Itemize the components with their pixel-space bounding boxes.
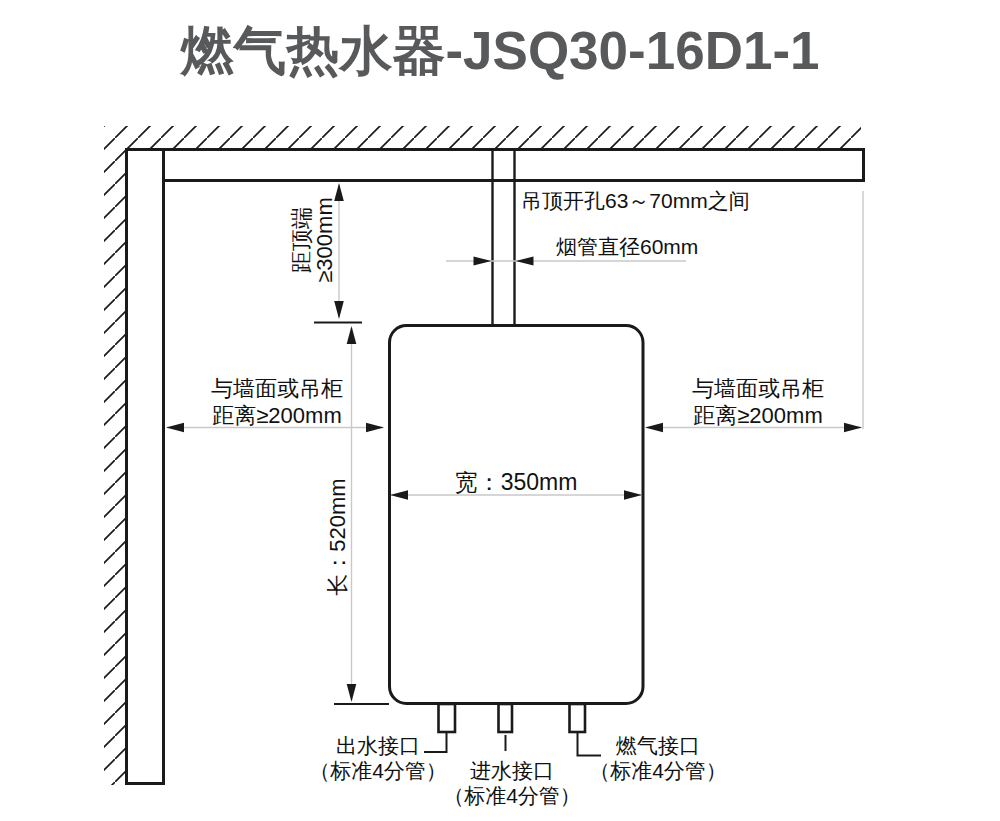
left-clearance-line1: 与墙面或吊柜 [211, 375, 343, 402]
top-clearance-line1: 距顶端 [290, 197, 313, 282]
ceiling-hole-label: 吊顶开孔63～70mm之间 [521, 188, 750, 213]
length-label: 长：520mm [325, 478, 350, 595]
top-clearance-line2: ≥300mm [313, 197, 336, 282]
diagram-canvas [0, 0, 1000, 821]
ceiling-hatch [104, 126, 861, 148]
inlet-line1: 进水接口 [443, 758, 581, 783]
outlet-line2: （标准4分管） [309, 758, 447, 783]
pipe-stubs [439, 704, 586, 732]
arrow-right-icon [366, 423, 384, 433]
left-clearance-label: 与墙面或吊柜 距离≥200mm [211, 375, 343, 429]
flue-diameter-label: 烟管直径60mm [556, 234, 698, 259]
arrow-down-icon [334, 301, 344, 319]
leader-lines [424, 733, 601, 756]
inlet-stub [499, 704, 513, 732]
right-clearance-line1: 与墙面或吊柜 [692, 375, 824, 402]
arrow-left-icon [516, 256, 534, 265]
right-clearance-line2: 距离≥200mm [692, 402, 824, 429]
gas-line2: （标准4分管） [589, 758, 727, 783]
arrow-left-icon [645, 423, 663, 433]
outlet-stub [439, 704, 456, 732]
left-clearance-line2: 距离≥200mm [211, 402, 343, 429]
wall [127, 150, 164, 784]
inlet-label: 进水接口 （标准4分管） [443, 758, 581, 808]
wall-hatch [104, 148, 125, 785]
outlet-label: 出水接口 （标准4分管） [309, 733, 447, 783]
arrow-left-icon [166, 423, 184, 433]
right-clearance-label: 与墙面或吊柜 距离≥200mm [692, 375, 824, 429]
width-label: 宽：350mm [455, 470, 578, 495]
arrow-down-icon [347, 684, 357, 702]
gas-line1: 燃气接口 [589, 733, 727, 758]
inlet-line2: （标准4分管） [443, 783, 581, 808]
arrow-right-icon [844, 423, 862, 433]
arrow-up-icon [347, 326, 357, 344]
installation-diagram-page: 燃气热水器-JSQ30-16D1-1 [0, 0, 1000, 821]
outlet-line1: 出水接口 [309, 733, 447, 758]
gas-label: 燃气接口 （标准4分管） [589, 733, 727, 783]
gas-stub [570, 704, 586, 732]
arrow-right-icon [474, 256, 492, 265]
heater-body [390, 326, 644, 704]
top-clearance-label: 距顶端 ≥300mm [290, 197, 336, 282]
